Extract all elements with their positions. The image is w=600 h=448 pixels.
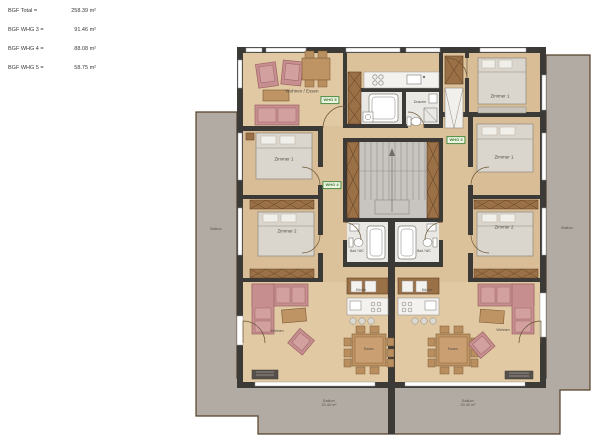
floor-plan: BGF Total = 258.39 m² BGF WHG 3 = 91.46 … (0, 0, 600, 448)
floor-plan-svg (0, 0, 600, 448)
unit-label-whg5: WHG 5 (320, 96, 339, 104)
unit-label-whg4: WHG 4 (322, 181, 341, 189)
unit-label-whg3: WHG 3 (446, 136, 465, 144)
